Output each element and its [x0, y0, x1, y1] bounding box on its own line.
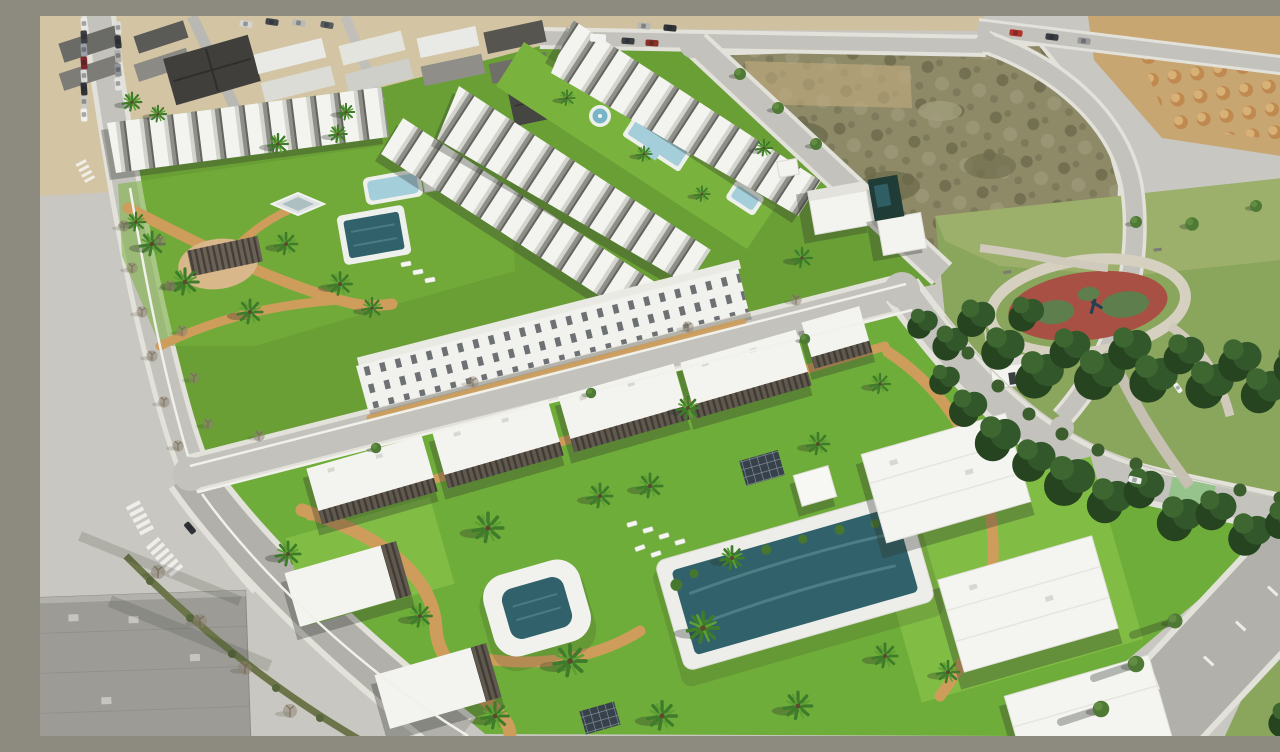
parked-car [645, 39, 658, 46]
parked-car [663, 24, 677, 32]
parked-van [590, 34, 606, 43]
aerial-render-canvas [40, 16, 1280, 736]
parked-car [80, 43, 87, 56]
parked-car [114, 63, 122, 77]
parked-car [80, 95, 87, 108]
parked-car [114, 49, 122, 63]
parked-car [114, 77, 122, 91]
parked-car [80, 17, 87, 30]
parked-car [637, 22, 651, 30]
parked-car [80, 69, 87, 82]
round-fountain [589, 105, 611, 127]
parked-car [80, 82, 87, 95]
parked-car [80, 30, 87, 43]
parked-car [80, 108, 87, 121]
parked-car [114, 21, 122, 35]
parked-car [621, 37, 634, 44]
parked-car [80, 56, 87, 69]
parked-car [114, 35, 122, 49]
aerial-site-render [40, 16, 1280, 736]
